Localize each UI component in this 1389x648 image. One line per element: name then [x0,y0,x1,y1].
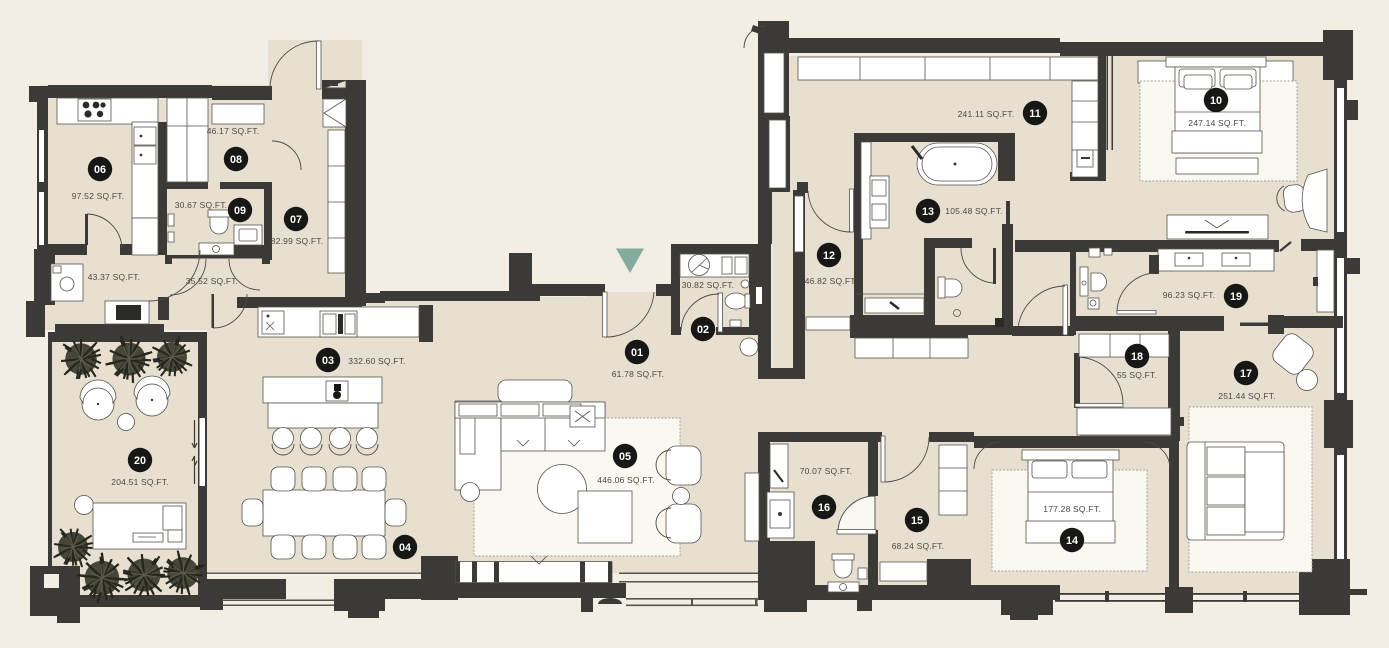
svg-text:30.67 SQ.FT.: 30.67 SQ.FT. [175,200,227,210]
svg-text:10: 10 [1210,95,1222,107]
svg-text:70.07 SQ.FT.: 70.07 SQ.FT. [800,466,852,476]
svg-text:01: 01 [631,347,643,359]
svg-text:247.14 SQ.FT.: 247.14 SQ.FT. [1188,118,1245,128]
svg-text:14: 14 [1066,535,1078,547]
svg-text:46.82 SQ.FT.: 46.82 SQ.FT. [805,276,857,286]
svg-text:11: 11 [1029,108,1040,120]
svg-text:05: 05 [619,451,631,463]
svg-text:07: 07 [290,214,302,226]
svg-text:43.37 SQ.FT.: 43.37 SQ.FT. [88,272,140,282]
svg-text:35.52 SQ.FT.: 35.52 SQ.FT. [186,276,238,286]
svg-text:15: 15 [911,515,923,527]
svg-text:06: 06 [94,164,106,176]
svg-text:82.99 SQ.FT.: 82.99 SQ.FT. [271,236,323,246]
svg-text:17: 17 [1240,368,1252,380]
svg-text:03: 03 [322,355,334,367]
svg-text:09: 09 [234,205,246,217]
svg-text:177.28 SQ.FT.: 177.28 SQ.FT. [1043,504,1100,514]
svg-text:204.51 SQ.FT.: 204.51 SQ.FT. [111,477,168,487]
svg-text:105.48 SQ.FT.: 105.48 SQ.FT. [945,206,1002,216]
svg-text:46.17 SQ.FT.: 46.17 SQ.FT. [207,126,259,136]
svg-text:13: 13 [922,206,934,218]
svg-text:19: 19 [1230,291,1242,303]
svg-text:332.60 SQ.FT.: 332.60 SQ.FT. [348,356,405,366]
svg-text:251.44 SQ.FT.: 251.44 SQ.FT. [1218,391,1275,401]
svg-text:446.06 SQ.FT.: 446.06 SQ.FT. [597,475,654,485]
svg-text:96.23 SQ.FT.: 96.23 SQ.FT. [1163,290,1215,300]
svg-text:02: 02 [697,324,709,336]
svg-text:20: 20 [134,455,146,467]
svg-text:241.11 SQ.FT.: 241.11 SQ.FT. [958,109,1015,119]
svg-text:55 SQ.FT.: 55 SQ.FT. [1117,370,1157,380]
svg-text:04: 04 [399,542,411,554]
svg-text:16: 16 [818,502,830,514]
svg-text:08: 08 [230,154,242,166]
svg-text:12: 12 [823,250,835,262]
svg-text:61.78 SQ.FT.: 61.78 SQ.FT. [612,369,664,379]
svg-text:30.82 SQ.FT.: 30.82 SQ.FT. [682,280,734,290]
svg-text:68.24 SQ.FT.: 68.24 SQ.FT. [892,541,944,551]
svg-text:18: 18 [1131,351,1143,363]
svg-text:97.52 SQ.FT.: 97.52 SQ.FT. [72,191,124,201]
